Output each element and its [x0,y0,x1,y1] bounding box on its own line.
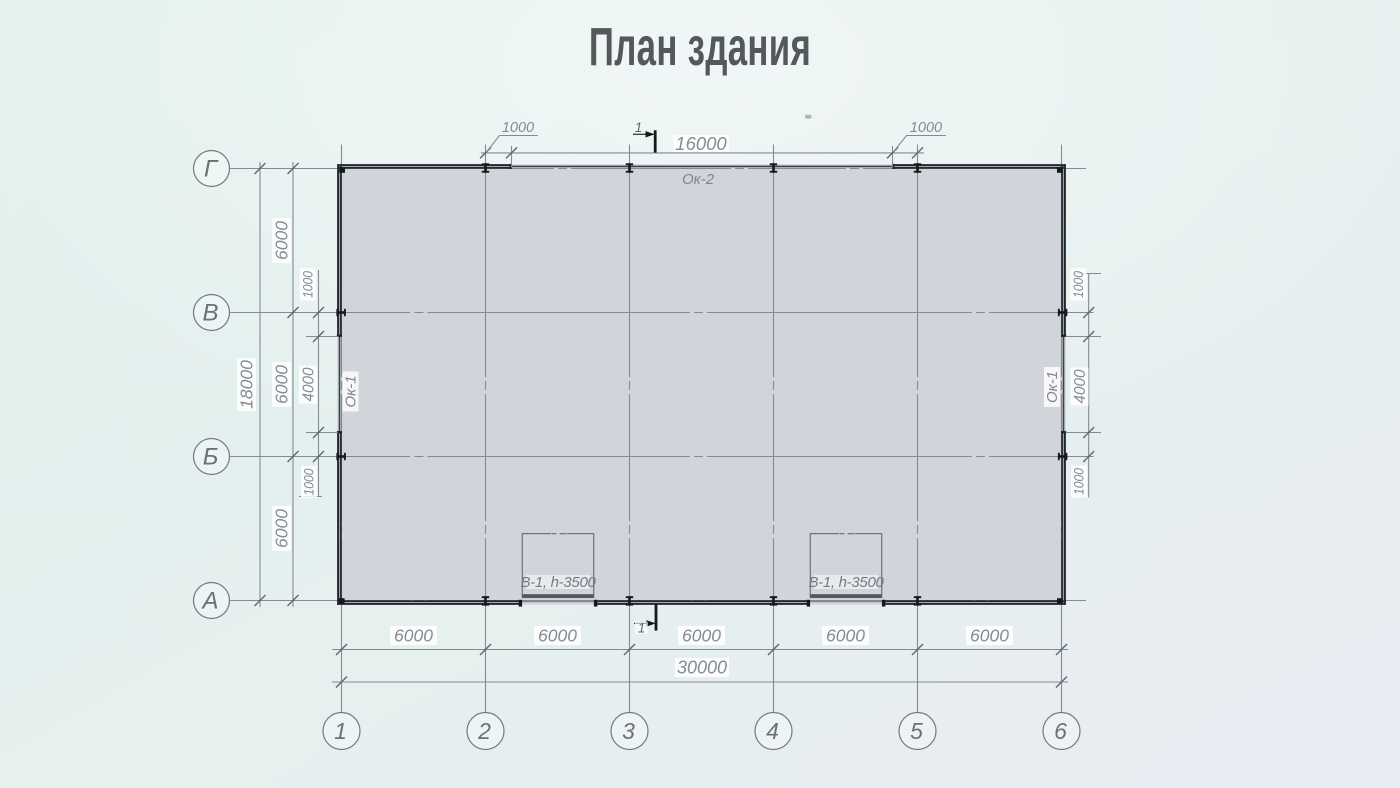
svg-text:6000: 6000 [394,626,433,646]
svg-text:1000: 1000 [910,120,942,136]
svg-text:4000: 4000 [1072,369,1089,403]
svg-text:6000: 6000 [538,626,577,646]
svg-text:План здания: План здания [589,16,811,77]
svg-text:6000: 6000 [272,365,292,404]
svg-text:В-1, h-3500: В-1, h-3500 [520,574,596,591]
svg-text:18000: 18000 [237,360,257,409]
svg-text:1: 1 [334,718,347,744]
svg-text:Г: Г [204,156,219,183]
svg-text:4000: 4000 [300,367,317,401]
svg-text:1000: 1000 [1072,468,1087,495]
svg-text:В: В [202,300,218,327]
svg-text:4: 4 [766,718,779,744]
svg-text:1: 1 [635,120,643,135]
svg-text:6000: 6000 [272,221,292,260]
svg-text:1: 1 [638,621,646,636]
svg-text:6: 6 [1054,718,1067,744]
svg-text:Ок-1: Ок-1 [1044,371,1061,403]
svg-text:5: 5 [910,718,923,744]
svg-text:6000: 6000 [272,509,292,548]
svg-text:3: 3 [622,718,635,744]
svg-text:В-1, h-3500: В-1, h-3500 [808,574,884,591]
svg-text:А: А [200,588,218,615]
svg-text:6000: 6000 [682,626,721,646]
svg-text:2: 2 [477,718,491,744]
svg-text:16000: 16000 [675,133,727,154]
svg-text:Ок-1: Ок-1 [343,375,360,407]
svg-text:30000: 30000 [677,658,727,678]
svg-text:1000: 1000 [301,271,316,298]
svg-text:1000: 1000 [502,120,534,136]
svg-text:Ок-2: Ок-2 [682,171,715,188]
svg-text:Б: Б [203,444,219,471]
svg-text:6000: 6000 [970,626,1009,646]
svg-text:1000: 1000 [1071,271,1086,298]
svg-text:1000: 1000 [302,468,317,495]
svg-text:6000: 6000 [826,626,865,646]
